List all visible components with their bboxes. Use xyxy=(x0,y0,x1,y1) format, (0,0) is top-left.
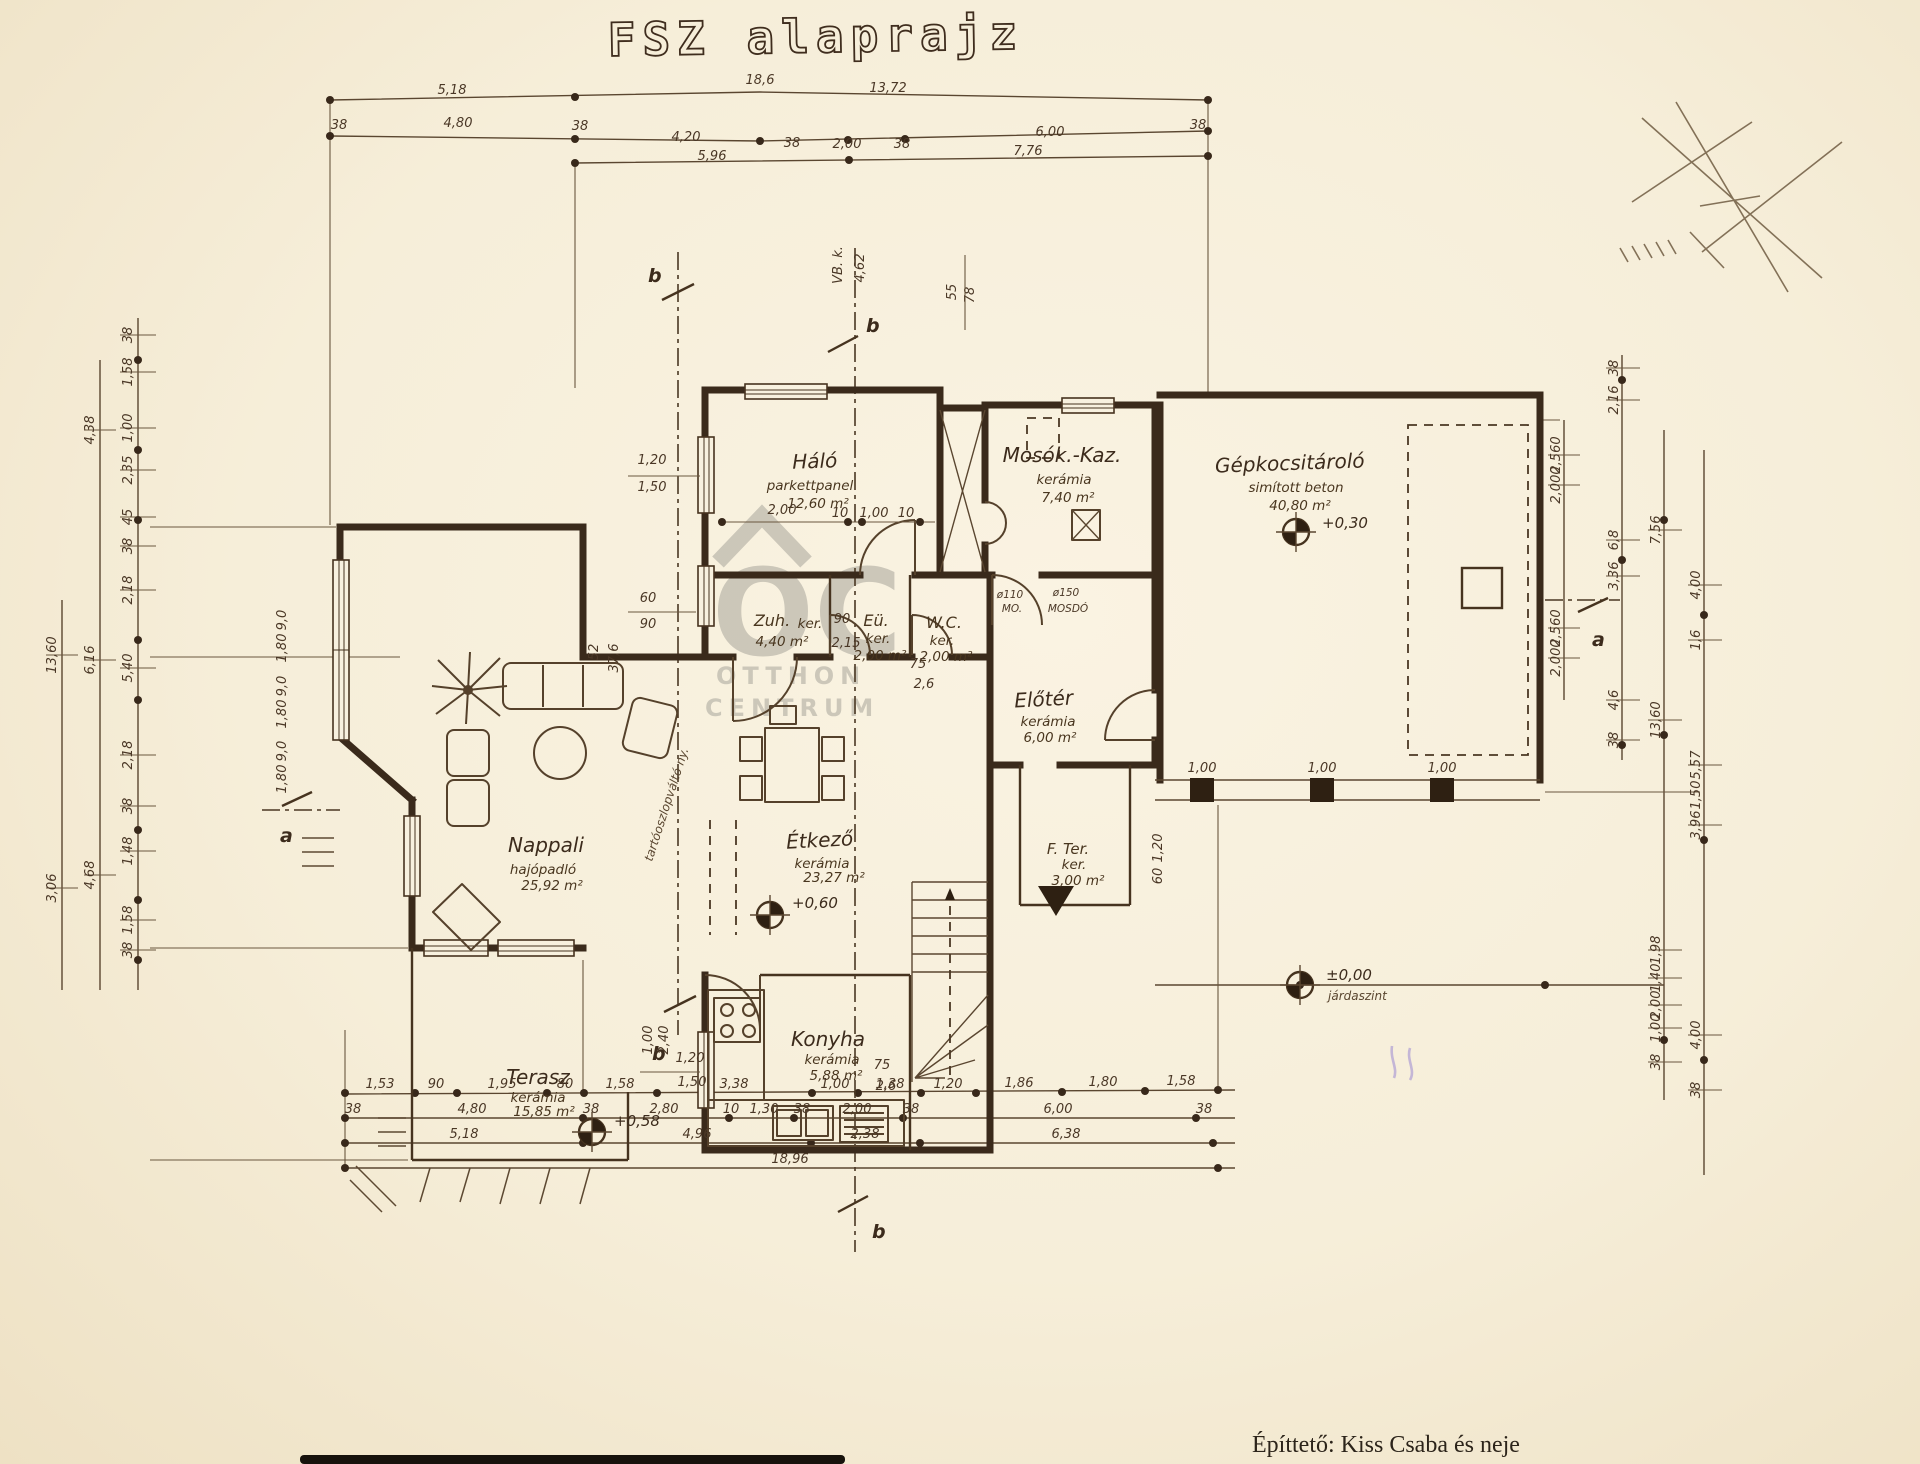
fixture-label: MO. xyxy=(1002,603,1022,615)
dim: 38 xyxy=(345,1102,362,1117)
pergola-pillar xyxy=(1190,778,1214,802)
dim: 1,00 xyxy=(1188,761,1217,776)
dim: 38 xyxy=(121,798,136,815)
room-name-nappali: Nappali xyxy=(508,833,584,857)
pencil-scribbles xyxy=(1620,102,1842,292)
dim: 1,58 xyxy=(121,358,136,387)
room-name-fter: F. Ter. xyxy=(1047,840,1089,858)
fixture-label: MOSDÓ xyxy=(1048,602,1088,615)
dim: 2,40 xyxy=(657,1026,672,1055)
page-title: FSZ alaprajz xyxy=(607,6,1024,67)
section-letter-b-axis2: b xyxy=(872,1221,886,1243)
dim: 1,00 xyxy=(1649,1014,1664,1043)
dim: 45 xyxy=(121,509,136,526)
dim: 4,00 xyxy=(1689,1021,1704,1050)
dim: 75 xyxy=(874,1058,891,1073)
section-letter-b-top: b xyxy=(648,265,662,287)
floorplan-canvas: OC OTTHON CENTRUM FSZ alaprajz xyxy=(0,0,1920,1464)
room-area-fter: 3,00 m² xyxy=(1052,873,1106,889)
dim: 1,86 xyxy=(1005,1076,1034,1091)
dim: 1,58 xyxy=(606,1077,635,1092)
dim: 38 xyxy=(331,118,348,133)
dim: 7,76 xyxy=(1014,144,1043,159)
section-letter-a-right: a xyxy=(1592,629,1605,651)
room-floor-wc: ker. xyxy=(930,633,955,649)
dim: 1,20 xyxy=(638,453,667,468)
dim: 6,8 xyxy=(1607,530,1622,551)
dim: VB. k. xyxy=(831,246,846,284)
room-area-mosok: 7,40 m² xyxy=(1042,490,1096,506)
elevation-symbol xyxy=(1280,965,1320,1005)
dim: 60 xyxy=(1151,868,1166,885)
room-area-wc: 2,00 m² xyxy=(920,649,974,665)
dim: 9,0 xyxy=(275,676,290,697)
dim: 4,00 xyxy=(1689,571,1704,600)
stairs xyxy=(912,882,988,1082)
fixture-label: ø150 xyxy=(1052,587,1080,599)
room-area-terasz: 15,85 m² xyxy=(513,1104,575,1120)
dim: 5,40 xyxy=(121,654,136,683)
dim: 38 xyxy=(121,942,136,959)
dim: 1,00 xyxy=(1428,761,1457,776)
dim: 38 xyxy=(1689,1082,1704,1099)
dim: 4,80 xyxy=(458,1102,487,1117)
room-area-etkezo: 23,27 m² xyxy=(803,870,865,886)
room-name-etkezo: Étkező xyxy=(785,826,854,854)
dim: 13,72 xyxy=(869,81,906,96)
chair xyxy=(822,776,844,800)
dim: 2,6 xyxy=(914,677,935,692)
dim: 2,80 xyxy=(650,1102,679,1117)
dim: 1,00 xyxy=(641,1026,656,1055)
dim: 10 xyxy=(898,506,915,521)
dim: 2,35 xyxy=(121,456,136,485)
dim: 6,00 xyxy=(1036,125,1065,140)
dim: 1,00 xyxy=(821,1077,850,1092)
dim: 80 xyxy=(557,1077,574,1092)
dim: 4,62 xyxy=(853,254,868,283)
dim: 6,38 xyxy=(1052,1127,1081,1142)
room-floor-fter: ker. xyxy=(1062,857,1087,873)
elevation-symbol xyxy=(750,895,790,935)
dim: 2,38 xyxy=(851,1127,880,1142)
dim: 2,18 xyxy=(121,576,136,605)
dim: 1,80 xyxy=(275,634,290,663)
scanned-floorplan-page: OC OTTHON CENTRUM FSZ alaprajz xyxy=(0,0,1920,1464)
dim: 1,00 xyxy=(1308,761,1337,776)
dim: 1,50 xyxy=(1689,781,1704,810)
dim: 5,18 xyxy=(438,83,467,98)
dim: 38 xyxy=(1196,1102,1213,1117)
dim: 9,0 xyxy=(275,741,290,762)
dim: 1,80 xyxy=(275,700,290,729)
chair xyxy=(740,776,762,800)
dim: 75 xyxy=(910,657,927,672)
room-floor-mosok: kerámia xyxy=(1036,472,1091,488)
scan-edge-artifact xyxy=(300,1455,845,1464)
section-letter-a-left: a xyxy=(280,825,293,847)
dim: 3,38 xyxy=(720,1077,749,1092)
dim: 1,95 xyxy=(488,1077,517,1092)
dim: 52 xyxy=(587,644,602,661)
room-name-halo: Háló xyxy=(792,448,838,474)
dim: 1,58 xyxy=(121,906,136,935)
plant xyxy=(432,652,507,724)
dim: 1,20 xyxy=(1151,834,1166,863)
section-letter-b-axis: b xyxy=(866,315,880,337)
dim: 1,20 xyxy=(934,1077,963,1092)
armchair xyxy=(621,696,679,760)
dim: 5,57 xyxy=(1689,750,1704,780)
elevation-symbol xyxy=(1276,512,1316,552)
dim: 1,80 xyxy=(1089,1075,1118,1090)
level-etkezo: +0,60 xyxy=(792,894,838,912)
entry-step-marker xyxy=(1038,886,1074,916)
dim: 38 xyxy=(1607,360,1622,377)
room-area-garazs: 40,80 m² xyxy=(1269,498,1331,514)
dim: 4,20 xyxy=(672,130,701,145)
room-floor-garazs: simított beton xyxy=(1248,480,1343,496)
chair xyxy=(822,737,844,761)
dim: 5,96 xyxy=(698,149,727,164)
room-labels: Háló parkettpanel 12,60 m² Mosók.-Kaz. k… xyxy=(506,443,1365,1120)
dim: 2,00 xyxy=(843,1102,872,1117)
dim: 1,50 xyxy=(638,480,667,495)
dim: 1,00 xyxy=(121,414,136,443)
dim: 18,6 xyxy=(746,73,775,88)
dim: 1,48 xyxy=(121,837,136,866)
armchair xyxy=(447,780,489,826)
dim: 38 xyxy=(903,1102,920,1117)
dim: 1,80 xyxy=(275,765,290,794)
dim: 2,000 xyxy=(1549,639,1564,676)
armchair xyxy=(447,730,489,776)
dim: 1,30 xyxy=(750,1102,779,1117)
fixture-label: ø110 xyxy=(996,589,1024,601)
dim: 3,36 xyxy=(1607,562,1622,591)
pergola-pillar xyxy=(1310,778,1334,802)
room-floor-halo: parkettpanel xyxy=(766,478,854,494)
dim: 13,60 xyxy=(45,636,60,673)
dim: 18,96 xyxy=(771,1152,808,1167)
dim: 2,00 xyxy=(768,503,797,518)
dim: 1,53 xyxy=(366,1077,395,1092)
room-floor-eloter: kerámia xyxy=(1020,714,1075,730)
room-name-mosok: Mosók.-Kaz. xyxy=(1003,443,1122,467)
pen-scribble-purple xyxy=(1392,1046,1412,1080)
room-name-eloter: Előtér xyxy=(1014,685,1076,712)
dim: 1,6 xyxy=(1689,630,1704,651)
dim: 38 xyxy=(1607,732,1622,749)
dim: 4,68 xyxy=(83,861,98,890)
dim: 13,60 xyxy=(1649,701,1664,738)
dim: 1,58 xyxy=(1167,1074,1196,1089)
room-name-garazs: Gépkocsitároló xyxy=(1215,448,1365,477)
dim: 2,00 xyxy=(833,137,862,152)
room-name-zuh: Zuh. xyxy=(753,611,790,630)
dim: 10 xyxy=(723,1102,740,1117)
walls xyxy=(340,390,1540,1160)
dim: 90 xyxy=(834,612,851,627)
dim: 37,6 xyxy=(607,644,622,673)
dim: 6,16 xyxy=(83,646,98,675)
room-area-eloter: 6,00 m² xyxy=(1024,730,1078,746)
dim: 3,06 xyxy=(45,874,60,903)
dim: 38 xyxy=(1190,118,1207,133)
dim: 4,38 xyxy=(83,416,98,445)
dim: 38 xyxy=(784,136,801,151)
dim: 1,40 xyxy=(1649,964,1664,993)
dim: 6,00 xyxy=(1044,1102,1073,1117)
dim: 2,16 xyxy=(1607,386,1622,415)
level-garazs: +0,30 xyxy=(1322,514,1368,532)
room-area-eu: 2,00 m² xyxy=(854,648,908,664)
dim: 4,96 xyxy=(683,1127,712,1142)
room-floor-eu: ker. xyxy=(866,631,891,647)
dimension-nodes xyxy=(134,93,1708,1172)
dim: 9,0 xyxy=(275,610,290,631)
beam-annotation: tartóoszlopváltó ny. xyxy=(642,746,692,863)
level-jarda: ±0,00 xyxy=(1326,966,1372,984)
watermark-centrum: CENTRUM xyxy=(705,694,879,722)
room-name-eu: Eü. xyxy=(863,611,888,630)
round-table xyxy=(534,727,586,779)
room-name-konyha: Konyha xyxy=(791,1027,865,1051)
client-caption: Építtető: Kiss Csaba és neje xyxy=(1252,1432,1520,1459)
dim: 7,56 xyxy=(1649,516,1664,545)
chair xyxy=(740,737,762,761)
dim: 38 xyxy=(894,137,911,152)
pergola-pillar xyxy=(1430,778,1454,802)
dim: 1,50 xyxy=(678,1075,707,1090)
dim: 60 xyxy=(640,591,657,606)
dim: 90 xyxy=(640,617,657,632)
dim: 38 xyxy=(1649,1054,1664,1071)
dining-table xyxy=(765,728,819,802)
garage-pier xyxy=(1462,568,1502,608)
room-area-nappali: 25,92 m² xyxy=(521,878,583,894)
windows xyxy=(333,384,1114,1108)
dim: 1,98 xyxy=(1649,936,1664,965)
dim: 55 xyxy=(945,284,960,301)
dim: 4,6 xyxy=(1607,690,1622,711)
dim: 90 xyxy=(428,1077,445,1092)
dim: 4,80 xyxy=(444,116,473,131)
room-name-wc: W.C. xyxy=(926,613,962,632)
dim: 38 xyxy=(572,119,589,134)
room-floor-konyha: kerámia xyxy=(804,1052,859,1068)
dim: 38 xyxy=(794,1102,811,1117)
dim: 2,000 xyxy=(1549,466,1564,503)
dim: 38 xyxy=(583,1102,600,1117)
dim: 5,18 xyxy=(450,1127,479,1142)
dim: 38 xyxy=(121,538,136,555)
dim: 2,15 xyxy=(832,636,861,651)
level-jarda-label: járdaszint xyxy=(1326,989,1388,1003)
room-area-zuh: 4,40 m² xyxy=(756,634,810,650)
dim: 38 xyxy=(121,327,136,344)
sofa xyxy=(503,663,623,709)
room-floor-nappali: hajópadló xyxy=(510,862,576,878)
dim: 1,20 xyxy=(676,1051,705,1066)
dim: 3,96 xyxy=(1689,811,1704,840)
room-floor-zuh: ker. xyxy=(798,616,823,632)
dim: 2,6 xyxy=(876,1079,897,1094)
dim: 2,18 xyxy=(121,741,136,770)
